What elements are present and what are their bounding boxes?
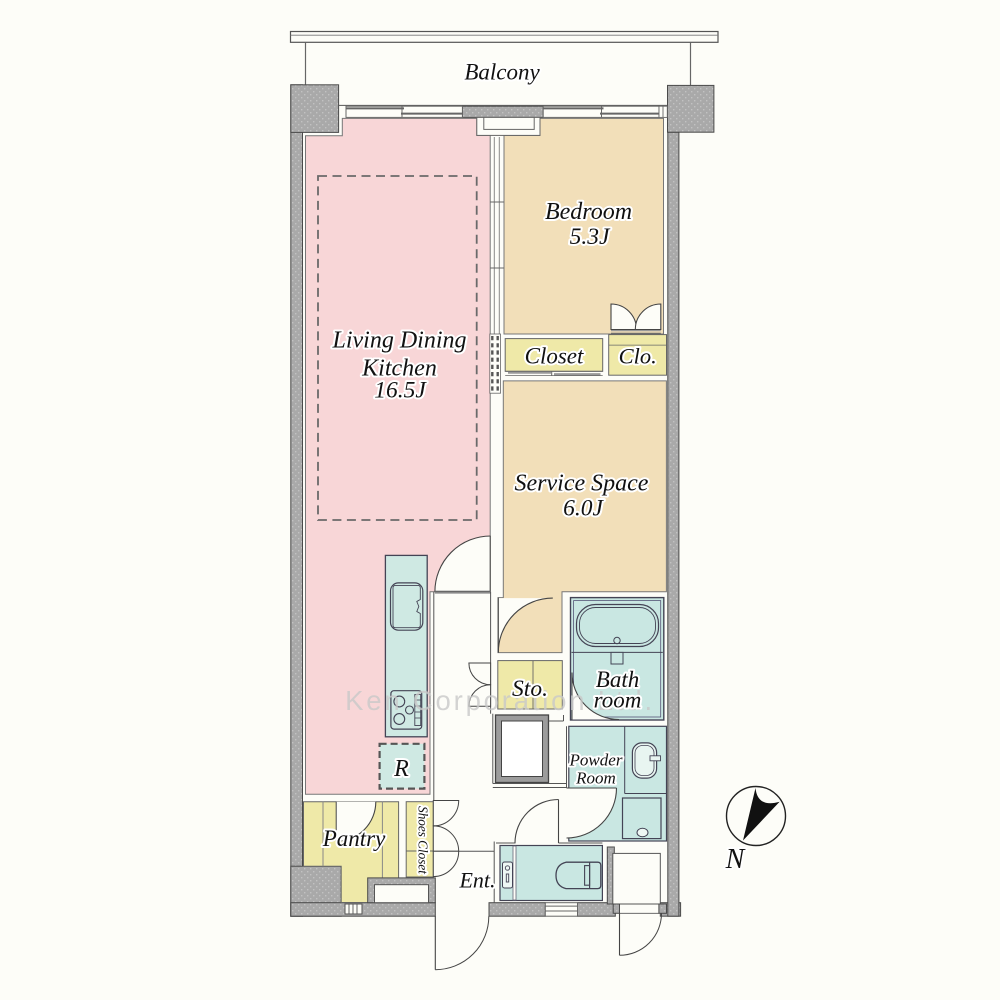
svg-text:Bedroom: Bedroom <box>545 199 632 225</box>
svg-text:Living Dining: Living Dining <box>331 328 466 354</box>
svg-text:N: N <box>725 844 746 875</box>
svg-text:Sto.: Sto. <box>512 676 548 702</box>
svg-text:Room: Room <box>575 769 616 788</box>
svg-text:Ent.: Ent. <box>458 868 495 893</box>
svg-text:Powder: Powder <box>569 751 623 770</box>
svg-text:6.0J: 6.0J <box>563 496 604 522</box>
svg-text:Clo.: Clo. <box>619 344 657 369</box>
svg-text:R: R <box>393 756 409 782</box>
svg-text:Service Space: Service Space <box>515 471 649 497</box>
svg-text:Shoes Closet: Shoes Closet <box>416 806 431 874</box>
svg-text:Pantry: Pantry <box>322 826 386 851</box>
svg-text:Closet: Closet <box>525 344 584 369</box>
svg-text:Balcony: Balcony <box>464 60 540 85</box>
svg-text:room: room <box>594 688 642 713</box>
svg-text:5.3J: 5.3J <box>570 224 611 250</box>
svg-text:16.5J: 16.5J <box>374 378 427 404</box>
